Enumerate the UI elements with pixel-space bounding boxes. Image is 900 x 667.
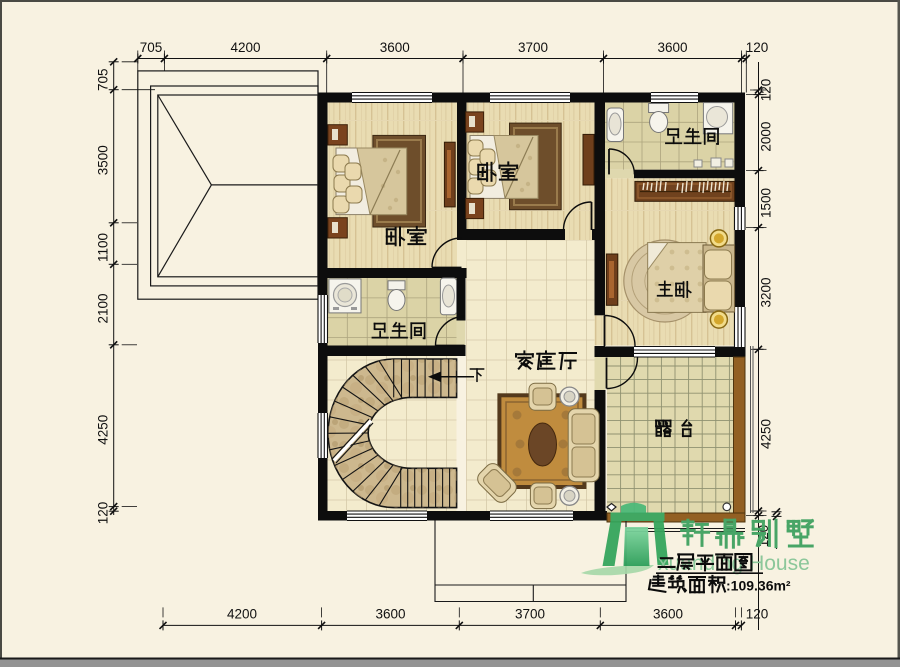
svg-text:3600: 3600 [375, 607, 405, 622]
svg-text:3500: 3500 [96, 145, 111, 175]
svg-text:120: 120 [746, 607, 769, 622]
svg-text:1500: 1500 [759, 188, 774, 218]
svg-text:3600: 3600 [653, 607, 683, 622]
svg-text:705: 705 [96, 68, 111, 91]
svg-text:4200: 4200 [230, 40, 260, 55]
svg-text:2000: 2000 [759, 122, 774, 152]
svg-text:3600: 3600 [380, 40, 410, 55]
svg-text:120: 120 [746, 40, 769, 55]
svg-text:3700: 3700 [518, 40, 548, 55]
svg-text:3600: 3600 [657, 40, 687, 55]
svg-text:4250: 4250 [96, 415, 111, 445]
svg-text:2100: 2100 [96, 293, 111, 323]
svg-text:3700: 3700 [515, 607, 545, 622]
svg-text:4250: 4250 [759, 419, 774, 449]
svg-text:3200: 3200 [759, 277, 774, 307]
svg-text:4200: 4200 [227, 607, 257, 622]
svg-text:705: 705 [140, 40, 163, 55]
svg-text:1100: 1100 [96, 233, 111, 262]
svg-text::109.36m²: :109.36m² [726, 578, 791, 594]
svg-text:120: 120 [96, 502, 111, 525]
